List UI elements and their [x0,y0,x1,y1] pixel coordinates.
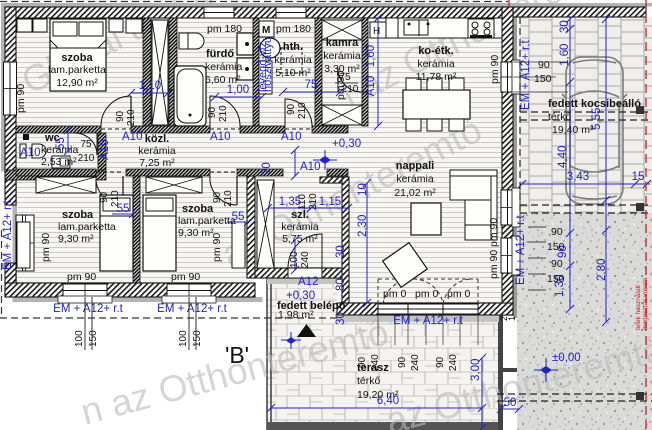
svg-text:1,00: 1,00 [227,84,249,96]
svg-text:90: 90 [115,110,126,122]
svg-text:80: 80 [335,278,347,291]
svg-text:M: M [262,25,270,36]
svg-text:10: 10 [357,183,369,196]
svg-text:4,40: 4,40 [557,146,569,168]
svg-text:1,15: 1,15 [319,196,341,208]
svg-text:térkő: térkő [357,375,381,387]
svg-text:fürdő: fürdő [206,48,234,60]
svg-text:90: 90 [551,258,563,270]
svg-text:1,35: 1,35 [279,196,301,208]
svg-text:pm 0: pm 0 [383,288,407,300]
svg-text:pm 180: pm 180 [276,23,311,35]
svg-text:ko-étk.: ko-étk. [418,45,453,57]
svg-text:100: 100 [178,330,189,347]
svg-text:EM + A12+ r.t: EM + A12+ r.t [53,303,123,315]
svg-text:150: 150 [547,241,565,253]
svg-text:EM + A12+ r.t: EM + A12+ r.t [2,200,14,270]
svg-text:szoba: szoba [61,52,93,64]
svg-text:megosztás vonala: megosztás vonala [642,277,649,330]
svg-text:21,02 m²: 21,02 m² [394,187,436,199]
svg-text:kerámia: kerámia [205,61,243,73]
svg-text:pm 90: pm 90 [40,233,52,262]
svg-text:7,25 m²: 7,25 m² [139,157,175,169]
svg-text:pm 90: pm 90 [15,84,27,113]
svg-text:100: 100 [74,330,85,347]
svg-text:150: 150 [547,273,565,285]
svg-text:150: 150 [534,73,552,85]
svg-text:A10: A10 [20,147,40,159]
svg-text:térkő: térkő [548,111,572,123]
svg-text:30: 30 [335,312,347,325]
svg-text:55: 55 [55,137,67,150]
svg-text:kerámia: kerámia [274,54,312,66]
svg-text:kerámia: kerámia [281,221,319,233]
svg-text:50: 50 [504,397,517,409]
svg-text:A10: A10 [99,140,111,160]
svg-text:hth.: hth. [283,41,303,53]
svg-text:55: 55 [117,203,130,215]
svg-text:A10: A10 [122,131,142,143]
svg-text:pm 90: pm 90 [211,233,223,262]
svg-text:pm 0: pm 0 [447,288,471,300]
svg-text:kerámia: kerámia [323,50,361,62]
svg-text:210: 210 [218,105,229,122]
svg-text:1,10: 1,10 [139,80,161,92]
svg-text:lam.parketta: lam.parketta [178,215,236,227]
svg-text:pm 90: pm 90 [488,250,500,279]
svg-text:pm 90: pm 90 [488,218,500,247]
svg-text:9,30 m²: 9,30 m² [178,227,214,239]
svg-text:30: 30 [335,245,347,258]
svg-text:lam.parketta: lam.parketta [58,221,116,233]
svg-text:150: 150 [192,330,203,347]
svg-text:+0,30: +0,30 [286,290,315,302]
svg-text:kerámia: kerámia [396,173,434,185]
svg-text:210: 210 [342,84,359,95]
svg-text:55: 55 [232,211,245,223]
svg-text:19,40 m²: 19,40 m² [552,124,594,136]
svg-text:2,53 m²: 2,53 m² [41,156,77,168]
svg-text:75: 75 [305,79,318,91]
svg-text:+0,30: +0,30 [332,138,361,150]
svg-text:1: 1 [507,316,517,321]
svg-text:pm 90: pm 90 [489,55,501,84]
svg-text:közl.: közl. [145,133,169,145]
svg-text:nappali: nappali [396,160,435,172]
svg-text:kamra: kamra [326,37,359,49]
svg-text:3,43: 3,43 [567,171,589,183]
svg-text:lam.parketta: lam.parketta [48,64,106,76]
svg-text:210: 210 [308,193,319,210]
svg-text:2,80: 2,80 [596,259,608,281]
svg-text:EM + A12+ r.t: EM + A12+ r.t [515,215,527,285]
svg-text:75: 75 [80,139,92,150]
svg-text:12,90 m²: 12,90 m² [56,77,98,89]
svg-text:90: 90 [286,103,297,115]
svg-text:20: 20 [261,162,273,175]
svg-text:6,40: 6,40 [377,395,399,407]
svg-text:pm 90: pm 90 [67,271,96,283]
svg-text:5,55: 5,55 [591,108,603,130]
svg-text:11,78 m²: 11,78 m² [416,71,457,83]
svg-text:EM + A12+ r.t: EM + A12+ r.t [393,315,463,327]
svg-text:kerámia: kerámia [138,145,176,157]
svg-text:90: 90 [357,356,368,368]
svg-text:1,98 m²: 1,98 m² [278,309,314,321]
svg-text:240: 240 [448,354,459,371]
svg-text:1,60: 1,60 [365,45,377,67]
svg-text:EM + A12+ r.t: EM + A12+ r.t [157,303,227,315]
svg-text:240: 240 [300,251,311,268]
svg-text:szoba: szoba [182,203,214,215]
svg-text:±0,00: ±0,00 [552,352,581,364]
svg-text:kerámia: kerámia [417,58,455,70]
svg-text:hőszivattyú: hőszivattyú [262,37,274,92]
svg-text:210: 210 [223,190,234,207]
svg-text:A10: A10 [281,131,301,143]
svg-text:90: 90 [99,191,110,203]
svg-text:90: 90 [212,191,223,203]
svg-text:90: 90 [435,356,446,368]
svg-text:240: 240 [370,354,381,371]
svg-text:90: 90 [207,106,218,118]
svg-text:H: H [373,26,380,37]
svg-text:5,75 m²: 5,75 m² [282,233,318,245]
svg-text:A10: A10 [300,161,320,173]
svg-text:5,10 m²: 5,10 m² [275,67,311,79]
svg-text:1,60: 1,60 [559,44,571,66]
svg-text:15: 15 [632,171,645,183]
svg-text:30: 30 [559,20,571,33]
svg-text:A12: A12 [298,276,318,288]
svg-text:210: 210 [78,153,95,164]
svg-text:pm 90: pm 90 [171,271,200,283]
svg-text:210: 210 [297,102,308,119]
svg-text:pm 0: pm 0 [415,288,439,300]
svg-text:2,30: 2,30 [357,215,369,237]
svg-text:A10: A10 [210,131,230,143]
svg-text:150: 150 [88,330,99,347]
svg-text:szoba: szoba [62,209,94,221]
svg-text:240: 240 [410,354,421,371]
svg-text:90: 90 [538,59,550,71]
svg-text:90: 90 [551,226,563,238]
svg-text:3,00: 3,00 [470,359,482,381]
svg-text:EM + A12+ r.t: EM + A12+ r.t [520,40,532,110]
svg-text:9,30 m²: 9,30 m² [58,233,94,245]
svg-text:75: 75 [339,72,351,83]
svg-text:telek használati: telek használati [635,285,642,330]
svg-text:210: 210 [126,109,137,126]
svg-text:pm 180: pm 180 [207,23,242,35]
svg-text:A10: A10 [365,76,377,96]
svg-text:'B': 'B' [225,342,249,368]
svg-text:90: 90 [397,356,408,368]
